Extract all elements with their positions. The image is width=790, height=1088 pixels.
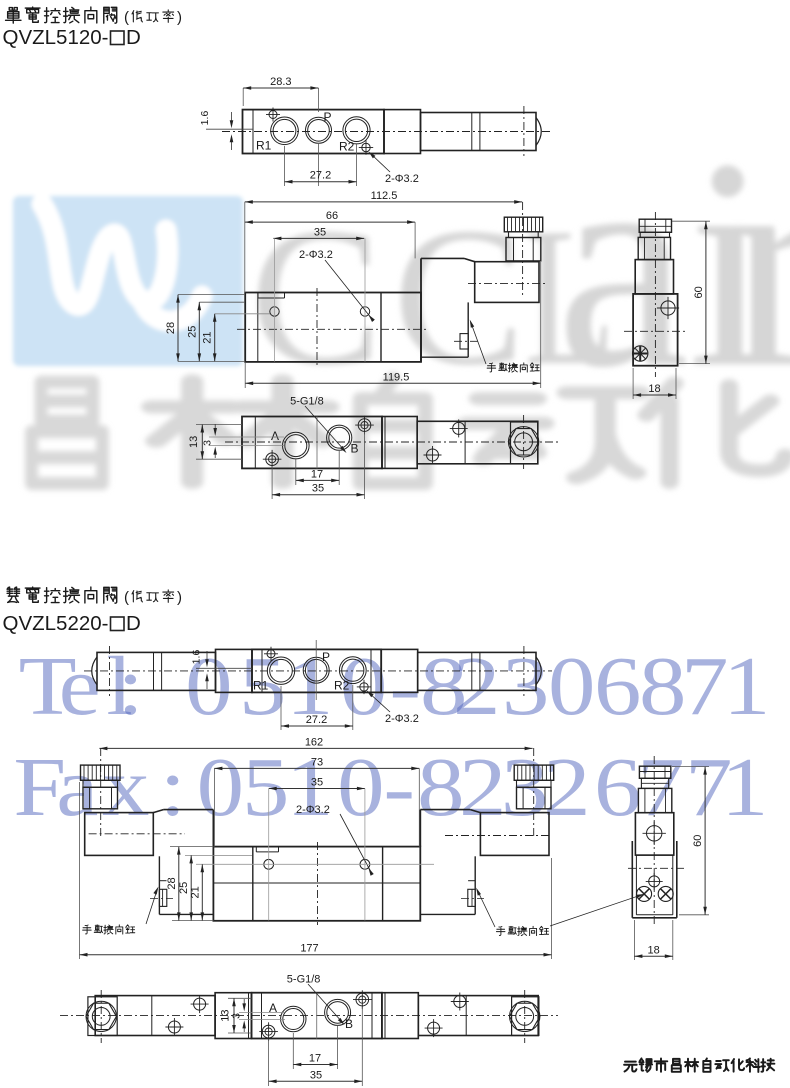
svg-text:17: 17 [311,468,323,480]
svg-text:R1: R1 [253,679,269,693]
svg-text:8: 8 [417,741,464,834]
svg-text:60: 60 [693,286,705,298]
svg-text:27.2: 27.2 [310,170,331,182]
svg-text:(: ( [124,9,129,26]
svg-text:66: 66 [326,210,338,222]
svg-text:B: B [345,1017,353,1031]
svg-text::: : [117,640,143,733]
svg-text:8: 8 [639,640,686,733]
svg-text:3: 3 [231,1013,243,1019]
svg-text:A: A [269,1001,277,1015]
svg-text:112.5: 112.5 [371,190,398,202]
svg-text:C: C [393,187,525,406]
svg-text:17: 17 [309,1053,321,1065]
svg-text:35: 35 [311,777,323,789]
svg-text:2: 2 [453,640,500,733]
svg-text:2-Φ3.2: 2-Φ3.2 [385,173,419,185]
svg-text:1: 1 [286,741,333,834]
svg-text:6: 6 [594,640,641,733]
svg-text:-: - [383,741,415,834]
svg-text:18: 18 [648,383,660,395]
svg-text:1.6: 1.6 [199,111,211,126]
svg-text:0: 0 [548,640,595,733]
svg-text:2-Φ3.2: 2-Φ3.2 [299,249,333,261]
svg-text::: : [160,741,186,834]
svg-text:7: 7 [681,640,728,733]
svg-text:5: 5 [242,741,289,834]
svg-text:D: D [126,26,141,49]
svg-text:2: 2 [459,741,506,834]
svg-text:5-G1/8: 5-G1/8 [290,396,324,408]
svg-text:60: 60 [692,835,704,847]
svg-text:28.3: 28.3 [270,76,291,88]
svg-text:): ) [177,9,182,26]
svg-text:2-Φ3.2: 2-Φ3.2 [385,713,419,725]
svg-text:D: D [126,612,141,635]
svg-text:(: ( [124,589,129,606]
svg-text:21: 21 [189,886,201,898]
svg-text:3: 3 [502,640,549,733]
svg-text:162: 162 [305,736,323,748]
svg-text:6: 6 [594,741,641,834]
svg-text:C: C [250,187,382,406]
svg-text:r: r [728,97,790,429]
svg-text:R2: R2 [334,679,350,693]
svg-text:1: 1 [723,640,770,733]
svg-text:1: 1 [721,741,768,834]
svg-text:P: P [322,650,330,664]
svg-text:e: e [59,640,101,733]
svg-text:1.6: 1.6 [191,650,203,665]
svg-text:B: B [351,442,359,456]
svg-text:177: 177 [300,943,318,955]
svg-text:R2: R2 [339,140,355,154]
svg-text:0: 0 [337,741,384,834]
svg-text:27.2: 27.2 [306,714,327,726]
svg-text:3: 3 [202,440,214,446]
svg-text:35: 35 [310,1069,322,1081]
svg-text:A: A [271,429,279,443]
svg-text:28: 28 [166,877,178,889]
svg-text:35: 35 [312,483,324,495]
svg-text:18: 18 [647,945,659,957]
svg-text:35: 35 [314,226,326,238]
svg-text:7: 7 [637,741,684,834]
svg-text:25: 25 [186,326,198,338]
svg-text:13: 13 [188,436,200,448]
svg-text:119.5: 119.5 [383,371,410,383]
svg-text:R1: R1 [256,139,272,153]
svg-text:): ) [177,589,182,606]
svg-text:QVZL5120-: QVZL5120- [3,26,109,49]
svg-text:QVZL5220-: QVZL5220- [3,612,109,635]
svg-text:73: 73 [311,756,323,768]
svg-text:28: 28 [165,322,177,334]
svg-text:21: 21 [202,331,214,343]
svg-text:5-G1/8: 5-G1/8 [287,974,321,986]
svg-text:0: 0 [197,741,244,834]
svg-text:P: P [324,110,332,124]
svg-text:2-Φ3.2: 2-Φ3.2 [296,804,330,816]
